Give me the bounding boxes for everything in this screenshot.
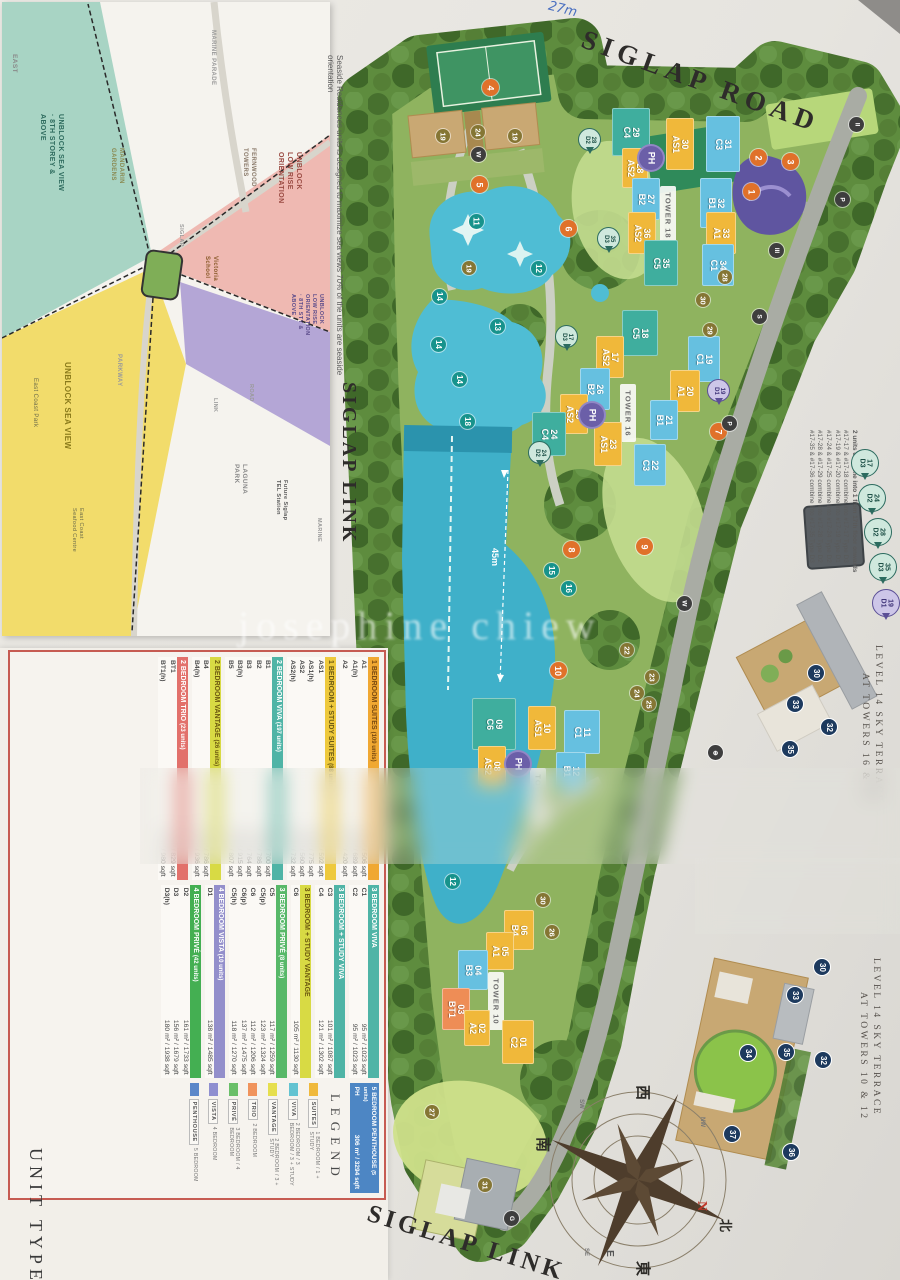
unit-row: D1138 m² / 1485 sqft bbox=[205, 885, 214, 1078]
service-marker-s: S bbox=[752, 309, 767, 324]
legend-vantage: VANTAGE2 BEDROOM / 3 + STUDY bbox=[267, 1083, 278, 1193]
amenity-marker-2: 2 bbox=[750, 149, 767, 166]
inset-label-unblock-seaview-yellow: UNBLOCK SEA VIEW bbox=[62, 362, 72, 449]
service-marker-p: P bbox=[835, 192, 850, 207]
inset-label-road: ROAD bbox=[247, 384, 254, 402]
inset-b-caption: LEVEL 14 SKY TERRACE AT TOWERS 10 & 12 bbox=[856, 958, 882, 1230]
unit-row: C195 m² / 1023 sqft bbox=[359, 885, 368, 1078]
group-3br-prive: 3 BEDROOM PRIVÉ (8 units) C5117 m² / 125… bbox=[229, 885, 287, 1078]
unit-row: C5(p)123 m² / 1324 sqft bbox=[257, 885, 266, 1078]
water-marker-14: 14 bbox=[452, 372, 467, 387]
group-3br-viva: 3 BEDROOM VIVA C195 m² / 1023 sqft C295 … bbox=[349, 885, 379, 1078]
watermark: josephine chiew bbox=[238, 602, 602, 649]
unit-row: D3156 m² / 1679 sqft bbox=[171, 885, 180, 1078]
group-4br-vista: 4 BEDROOM VISTA (10 units) D1138 m² / 14… bbox=[205, 885, 225, 1078]
group-3br-study-vantage: 3 BEDROOM + STUDY VANTAGE C6105 m² / 113… bbox=[291, 885, 311, 1078]
legend-trio: TRIO2 BEDROOM bbox=[248, 1083, 258, 1193]
garden-marker-30: 30 bbox=[536, 893, 550, 907]
compass-east-cn: 東 bbox=[636, 1258, 651, 1279]
inset-label-parkway: PARKWAY bbox=[115, 354, 123, 386]
unit-row: C295 m² / 1023 sqft bbox=[349, 885, 358, 1078]
garden-marker-30: 30 bbox=[696, 293, 710, 307]
legend-swatch-vista bbox=[209, 1083, 218, 1096]
water-marker-14: 14 bbox=[432, 289, 447, 304]
unit-types-red-box: 1 BEDROOM SUITES (109 units) A147 m² / 5… bbox=[8, 650, 386, 1200]
garden-marker-26: 26 bbox=[545, 925, 559, 939]
compass-e-letter: E bbox=[606, 1248, 613, 1259]
terrace-marker-35: 35 bbox=[782, 741, 798, 757]
inset-label-unblock-seaview-teal: UNBLOCK SEA VIEW · 8TH STOREY & ABOVE bbox=[38, 114, 64, 191]
inset-label-marine-parade: MARINE PARADE bbox=[209, 30, 217, 85]
unit-block-11-c1: 11 C1 bbox=[564, 710, 600, 754]
inset-label-mandarin-gardens: MANDARIN GARDENS bbox=[109, 148, 124, 184]
legend-pin-28-d2: 28 D2 bbox=[864, 518, 892, 546]
water-marker-15: 15 bbox=[544, 563, 559, 578]
legend-pin-17-d3: 17 D3 bbox=[851, 449, 879, 477]
combine-bubble-24-d2: 24 D2 bbox=[528, 441, 551, 464]
inset-label-victoria-school: Victoria School bbox=[203, 256, 218, 281]
tower-16-label: TOWER 16 bbox=[620, 384, 636, 442]
terrace-marker-30: 30 bbox=[808, 665, 824, 681]
legend-viva: VIVA2 BEDROOM / 3 BEDROOM / 3 + STUDY bbox=[287, 1083, 298, 1193]
unit-block-09-c6: 09 C6 bbox=[472, 698, 516, 750]
water-marker-13: 13 bbox=[490, 319, 505, 334]
unit-block-21-b1: 21 B1 bbox=[650, 400, 678, 440]
unit-row: C3101 m² / 1087 sqft bbox=[325, 885, 334, 1078]
water-marker-12: 12 bbox=[445, 874, 460, 889]
entrance-marker-iii: III bbox=[769, 243, 784, 258]
combine-bubble-19-d1: 19 D1 bbox=[707, 379, 730, 402]
amenity-marker-6: 6 bbox=[560, 220, 577, 237]
legend-prive: PRIVÉ3 BEDROOM / 4 BEDROOM bbox=[227, 1083, 238, 1193]
inset-label-tel-station: Future Siglap TEL Station bbox=[274, 480, 288, 520]
inset-location-map: EAST UNBLOCK SEA VIEW · 8TH STOREY & ABO… bbox=[2, 2, 330, 636]
unit-block-23-as1: 23 AS1 bbox=[594, 422, 622, 466]
legend-pin-24-d2: 24 D2 bbox=[858, 484, 886, 512]
amenity-marker-1: 1 bbox=[743, 183, 760, 200]
combine-notes: 2 units combine into 1 from 17th floor o… bbox=[800, 430, 858, 648]
unit-table-col-3: 5 BEDROOM PENTHOUSE (5 units) PH306 m² /… bbox=[15, 1083, 379, 1193]
inset-label-seafood-centre: East Coast Seafood Centre bbox=[70, 508, 84, 552]
unit-row: C6112 m² / 1206 sqft bbox=[248, 885, 257, 1078]
compass-west-cn: 西 bbox=[636, 1082, 651, 1103]
water-marker-14: 14 bbox=[431, 337, 446, 352]
combine-note-line: #17-24 & #17-25 combine into #17-24 Type… bbox=[823, 430, 832, 648]
inset-label-siglap: SIGLAP bbox=[177, 224, 184, 247]
legend-pin-35-d3: 35 D3 bbox=[869, 553, 897, 581]
inset-label-marine: MARINE bbox=[315, 518, 322, 542]
inset-label-east-coast-park: East Coast Park bbox=[31, 378, 39, 427]
legend-swatch-penthouse bbox=[190, 1083, 199, 1096]
unit-row: C5(h)118 m² / 1270 sqft bbox=[229, 885, 238, 1078]
water-marker-11: 11 bbox=[469, 214, 484, 229]
compass-sw-label: SW bbox=[576, 1101, 586, 1107]
privacy-blur-band bbox=[695, 858, 900, 934]
compass-n-letter: N bbox=[696, 1198, 706, 1214]
terrace-marker-32: 32 bbox=[815, 1052, 831, 1068]
entrance-marker-ii: II bbox=[849, 117, 864, 132]
combine-bubble-35-d3: 35 D3 bbox=[597, 227, 620, 250]
compass-north-cn: 北 bbox=[720, 1216, 733, 1235]
garden-marker-25: 25 bbox=[642, 697, 656, 711]
compass-se-label: SE bbox=[582, 1249, 590, 1255]
garden-marker-28: 28 bbox=[718, 270, 732, 284]
garden-marker-29: 29 bbox=[703, 323, 717, 337]
service-marker-w: W bbox=[471, 147, 486, 162]
compass-south-cn: 南 bbox=[536, 1134, 551, 1155]
unit-row: C6(p)137 m² / 1475 sqft bbox=[238, 885, 247, 1078]
unit-row: D3(h)180 m² / 1938 sqft bbox=[161, 885, 170, 1078]
inset-b-caption-line1: LEVEL 14 SKY TERRACE bbox=[869, 958, 882, 1230]
terrace-marker-35: 35 bbox=[778, 1044, 794, 1060]
combine-note-line: #17-28 & #17-29 combine into #17-28 Type… bbox=[815, 430, 824, 648]
unit-block-05-a1: 05 A1 bbox=[486, 932, 514, 970]
garden-marker-23: 23 bbox=[645, 670, 659, 684]
service-marker-p: P bbox=[722, 416, 737, 431]
unit-block-31-c3: 31 C3 bbox=[706, 116, 740, 172]
seaside-caption: Seaside Residences units is designed to … bbox=[329, 55, 344, 407]
terrace-marker-33: 33 bbox=[787, 987, 803, 1003]
terrace-marker-34: 34 bbox=[740, 1045, 756, 1061]
tower-18-label: TOWER 18 bbox=[660, 186, 676, 244]
unit-row: D2161 m² / 1733 sqft bbox=[180, 885, 189, 1078]
combine-bubble-28-d2: 28 D2 bbox=[578, 128, 601, 151]
inset-label-unblock-lowrise-purple: UNBLOCK LOW RISE ORIENTATION · 8TH STY &… bbox=[290, 294, 324, 335]
unit-block-35-c5: 35 C5 bbox=[644, 240, 678, 286]
terrace-marker-30: 30 bbox=[814, 959, 830, 975]
legend-swatch-viva bbox=[289, 1083, 298, 1096]
unit-block-01-c2: 01 C2 bbox=[502, 1020, 534, 1064]
amenity-marker-8: 8 bbox=[563, 541, 580, 558]
garden-marker-22: 22 bbox=[620, 643, 634, 657]
combine-note-line: #17-19 & #17-20 combine into #17-19 Type… bbox=[832, 430, 841, 648]
group-4br-prive: 4 BEDROOM PRIVÉ (42 units) D2161 m² / 17… bbox=[161, 885, 200, 1078]
combine-note-line: #17-17 & #17-18 combine into #17-17 Type… bbox=[841, 430, 850, 648]
garden-marker-24: 24 bbox=[471, 125, 485, 139]
pool-length-label: 45m bbox=[486, 552, 504, 562]
legend-swatch-trio bbox=[248, 1083, 257, 1096]
water-marker-16: 16 bbox=[561, 581, 576, 596]
unit-row: C4121 m² / 1302 sqft bbox=[315, 885, 324, 1078]
unit-block-30-as1: 30 AS1 bbox=[666, 118, 694, 170]
terrace-marker-36: 36 bbox=[783, 1144, 799, 1160]
amenity-marker-10: 10 bbox=[550, 662, 567, 679]
siglap-link-side-title: SIGLAP LINK bbox=[333, 382, 360, 532]
service-marker-w: W bbox=[677, 596, 692, 611]
privacy-blur-band bbox=[140, 768, 900, 864]
unit-table-col-2: 3 BEDROOM VIVA C195 m² / 1023 sqft C295 … bbox=[15, 885, 379, 1078]
legend-penthouse: PENTHOUSE5 BEDROOM bbox=[189, 1083, 199, 1193]
water-marker-12: 12 bbox=[531, 261, 546, 276]
combine-note-line: #17-35 & #17-36 combine into #17-35 Type… bbox=[806, 430, 815, 648]
amenity-marker-4: 4 bbox=[482, 79, 499, 96]
garden-marker-19: 19 bbox=[462, 261, 476, 275]
combine-bubble-17-d3: 17 D3 bbox=[555, 325, 578, 348]
inset-label-unblock-lowrise-pink: UNBLOCK LOW RISE ORIENTATION bbox=[276, 152, 302, 204]
legend-swatch-vantage bbox=[268, 1083, 277, 1096]
unit-block-10-as1: 10 AS1 bbox=[528, 706, 556, 750]
garden-marker-19: 19 bbox=[436, 129, 450, 143]
amenity-marker-9: 9 bbox=[636, 538, 653, 555]
garden-marker-19: 19 bbox=[508, 129, 522, 143]
inset-label-east: EAST bbox=[10, 54, 18, 73]
amenity-marker-5: 5 bbox=[471, 176, 488, 193]
terrace-marker-33: 33 bbox=[787, 696, 803, 712]
legend-pin-19-d1: 19 D1 bbox=[872, 589, 900, 617]
water-marker-18: 18 bbox=[460, 414, 475, 429]
group-3br-study-viva: 3 BEDROOM + STUDY VIVA C3101 m² / 1087 s… bbox=[315, 885, 345, 1078]
unit-row: C5117 m² / 1259 sqft bbox=[267, 885, 276, 1078]
inset-map-zones bbox=[2, 2, 330, 636]
unit-block-04-b3: 04 B3 bbox=[458, 950, 488, 990]
legend-vista: VISTA4 BEDROOM bbox=[208, 1083, 218, 1193]
garden-marker-24: 24 bbox=[630, 686, 644, 700]
inset-label-link: LINK bbox=[211, 398, 218, 412]
penthouse-marker: PH bbox=[580, 403, 604, 427]
unit-row: C6105 m² / 1130 sqft bbox=[291, 885, 300, 1078]
unit-block-02-a2: 02 A2 bbox=[464, 1010, 490, 1046]
inset-label-laguna-park: LAGUNA PARK bbox=[232, 464, 248, 494]
legend-swatch-suites bbox=[309, 1083, 318, 1096]
terrace-marker-37: 37 bbox=[724, 1126, 740, 1142]
unit-block-18-c5: 18 C5 bbox=[622, 310, 658, 356]
terrace-marker-32: 32 bbox=[821, 719, 837, 735]
garden-marker-27: 27 bbox=[425, 1105, 439, 1119]
compass-nw-label: NW bbox=[697, 1119, 707, 1125]
inset-label-fernwood: FERNWOOD TOWERS bbox=[241, 148, 256, 187]
amenity-marker-3: 3 bbox=[782, 153, 799, 170]
unit-types-table: 1 BEDROOM SUITES (109 units) A147 m² / 5… bbox=[0, 648, 388, 1280]
penthouse-marker: PH bbox=[639, 146, 663, 170]
legend-swatch-prive bbox=[229, 1083, 238, 1096]
unit-block-22-c3: 22 C3 bbox=[634, 444, 666, 486]
garden-marker-31: 31 bbox=[478, 1178, 492, 1192]
brochure-photo: EAST UNBLOCK SEA VIEW · 8TH STOREY & ABO… bbox=[0, 0, 900, 1280]
inset-b-caption-line2: AT TOWERS 10 & 12 bbox=[855, 958, 868, 1230]
penthouse-bar: 5 BEDROOM PENTHOUSE (5 units) PH306 m² /… bbox=[350, 1083, 379, 1193]
inset-north-marker: ⊕ bbox=[708, 745, 723, 760]
legend-title: LEGEND bbox=[327, 1083, 343, 1193]
legend-suites: SUITES1 BEDROOM / 1 + STUDY bbox=[308, 1083, 319, 1193]
service-marker-g: G bbox=[504, 1211, 519, 1226]
unit-types-title: UNIT TYPES bbox=[25, 1148, 46, 1280]
